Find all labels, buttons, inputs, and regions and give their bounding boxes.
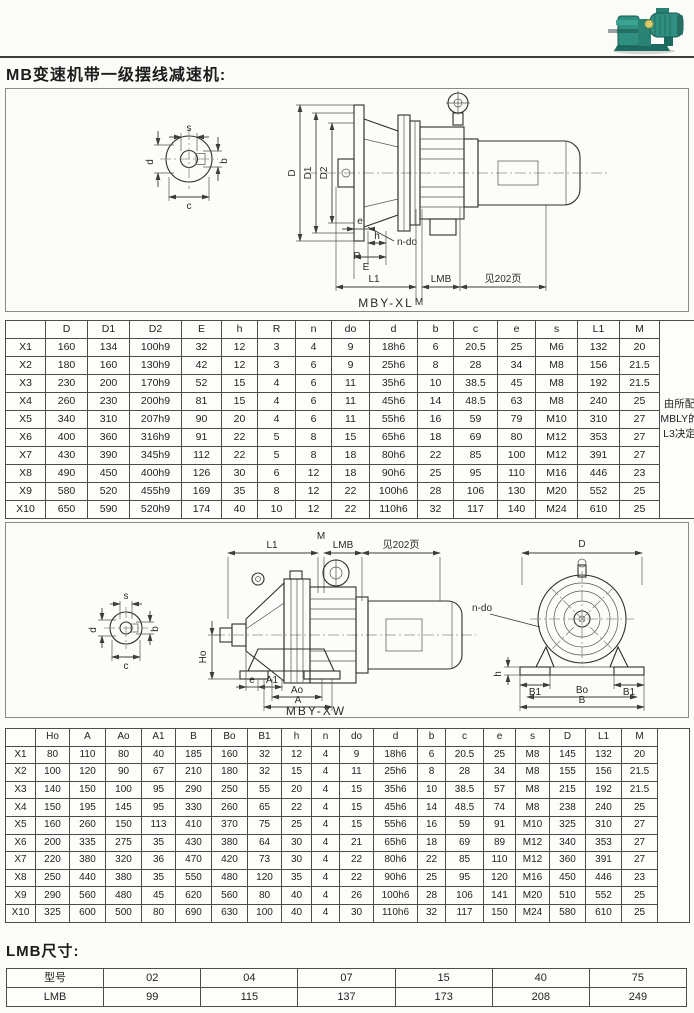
see-page-label: 见202页: [383, 539, 420, 551]
table-cell: 500: [106, 904, 142, 922]
table-cell: 35h6: [374, 781, 418, 799]
lmb-dimension-table: 型号020407154075LMB99115137173208249: [6, 968, 687, 1007]
table-cell: 55: [248, 781, 282, 799]
table-cell: 340: [46, 411, 88, 429]
column-header: D1: [88, 321, 130, 339]
table-cell: 335: [70, 834, 106, 852]
table-cell: 28: [418, 483, 454, 501]
table-cell: 34: [498, 357, 536, 375]
dim-label-Ho: Ho: [198, 650, 209, 663]
table-cell: M24: [536, 501, 578, 519]
table-cell: 18: [418, 429, 454, 447]
table-cell: 446: [586, 869, 622, 887]
table-cell: 95: [454, 465, 498, 483]
shaft-end-view: s d b c: [88, 591, 161, 672]
table-cell: 20: [622, 746, 658, 764]
table-cell: 18: [418, 834, 446, 852]
table-cell: 65h6: [374, 834, 418, 852]
table-cell: M24: [516, 904, 550, 922]
table-cell: 340: [550, 834, 586, 852]
table-cell: 6: [296, 375, 332, 393]
column-header: d: [370, 321, 418, 339]
corner-cell: 型号: [7, 969, 104, 988]
table-cell: 150: [70, 781, 106, 799]
dim-label-R: R: [353, 251, 360, 262]
table-cell: 15: [282, 764, 312, 782]
table-cell: 160: [88, 357, 130, 375]
table-cell: 23: [622, 869, 658, 887]
table-cell: 90: [182, 411, 222, 429]
table-cell: 4: [312, 869, 340, 887]
column-header: h: [222, 321, 258, 339]
dim-label-n-do: n-do: [472, 603, 492, 614]
table-cell: 490: [46, 465, 88, 483]
row-label: X3: [6, 781, 36, 799]
table-cell: 380: [70, 852, 106, 870]
column-header: D2: [130, 321, 182, 339]
table-cell: 137: [298, 988, 395, 1007]
column-header: 02: [104, 969, 201, 988]
table-cell: 90h6: [374, 869, 418, 887]
table-cell: 240: [586, 799, 622, 817]
table-cell: 110h6: [374, 904, 418, 922]
table-cell: 520h9: [130, 501, 182, 519]
table-cell: 480: [106, 887, 142, 905]
column-header: e: [484, 729, 516, 747]
product-photo: [606, 4, 690, 56]
table-cell: 420: [212, 852, 248, 870]
table-cell: 174: [182, 501, 222, 519]
table-cell: 12: [296, 465, 332, 483]
diagram1-caption: MBY-XL: [358, 296, 414, 310]
table-cell: 32: [248, 764, 282, 782]
table-cell: 4: [312, 799, 340, 817]
table-cell: 30: [282, 852, 312, 870]
table-cell: 110: [70, 746, 106, 764]
table-cell: 106: [454, 483, 498, 501]
table-cell: M20: [516, 887, 550, 905]
table-cell: 480: [212, 869, 248, 887]
table-cell: 16: [418, 816, 446, 834]
table-cell: 208: [492, 988, 589, 1007]
table-cell: 120: [70, 764, 106, 782]
table-cell: 100h9: [130, 339, 182, 357]
table-cell: 117: [454, 501, 498, 519]
table-cell: 310: [88, 411, 130, 429]
table-cell: 330: [176, 799, 212, 817]
table-cell: 25: [418, 869, 446, 887]
table-cell: 160: [36, 816, 70, 834]
table-cell: 22: [340, 869, 374, 887]
table-row: X415019514595330260652241545h61448.574M8…: [6, 799, 690, 817]
row-label: X8: [6, 869, 36, 887]
table-cell: 21.5: [622, 781, 658, 799]
table-cell: 4: [312, 816, 340, 834]
table-cell: 580: [550, 904, 586, 922]
shaft-end-view: s d b c: [145, 123, 230, 212]
table-cell: M6: [536, 339, 578, 357]
table-cell: 65: [248, 799, 282, 817]
table-cell: 25: [622, 904, 658, 922]
table-cell: 610: [586, 904, 622, 922]
dim-label-D2: D2: [319, 166, 330, 179]
column-header: 40: [492, 969, 589, 988]
diagram-box-mby-xl: s d b c: [5, 88, 689, 312]
table-cell: 120: [248, 869, 282, 887]
table-cell: 4: [312, 764, 340, 782]
table-cell: 12: [222, 357, 258, 375]
table-cell: 18: [332, 447, 370, 465]
table-cell: 69: [446, 834, 484, 852]
table-cell: 430: [176, 834, 212, 852]
row-label: X5: [6, 411, 46, 429]
column-header: R: [258, 321, 296, 339]
table-cell: 74: [484, 799, 516, 817]
table-cell: M12: [516, 852, 550, 870]
table-row: X722038032036470420733042280h62285110M12…: [6, 852, 690, 870]
table-cell: 5: [258, 429, 296, 447]
table-cell: M10: [536, 411, 578, 429]
table-cell: 552: [578, 483, 620, 501]
column-header: A: [70, 729, 106, 747]
dim-label-n-do: n-do: [397, 237, 417, 248]
table-cell: M16: [516, 869, 550, 887]
header-row: 型号020407154075: [7, 969, 687, 988]
dim-label-s: s: [187, 123, 192, 134]
table-cell: 560: [70, 887, 106, 905]
table-cell: 22: [332, 483, 370, 501]
table-cell: 391: [578, 447, 620, 465]
row-label: X4: [6, 393, 46, 411]
table-row: LMB99115137173208249: [7, 988, 687, 1007]
table-cell: 48.5: [446, 799, 484, 817]
table-cell: 15: [340, 816, 374, 834]
table-row: X10650590520h917440101222110h632117140M2…: [6, 501, 694, 519]
table-row: X9290560480456205608040426100h628106141M…: [6, 887, 690, 905]
table-cell: 520: [88, 483, 130, 501]
assembly-end-view: D n-do: [472, 539, 644, 711]
table-cell: 27: [620, 429, 660, 447]
table-cell: 316h9: [130, 429, 182, 447]
table-cell: 59: [446, 816, 484, 834]
table-cell: 73: [248, 852, 282, 870]
table-row: X1160134100h9321234918h6620.525M613220: [6, 339, 694, 357]
dim-label-b: b: [219, 158, 230, 164]
table-cell: 620: [176, 887, 212, 905]
table-cell: 80h6: [374, 852, 418, 870]
column-header: b: [418, 321, 454, 339]
table-cell: 25: [622, 799, 658, 817]
table-cell: 85: [446, 852, 484, 870]
dim-label-D: D: [578, 539, 585, 550]
table-row: X7430390345h911222581880h62285100M123912…: [6, 447, 694, 465]
table-cell: 45h6: [374, 799, 418, 817]
table-cell: 410: [176, 816, 212, 834]
mby-xw-drawing: s d b c: [6, 523, 688, 717]
table-cell: 100: [106, 781, 142, 799]
table-cell: 210: [176, 764, 212, 782]
row-label: X6: [6, 429, 46, 447]
table-cell: 12: [296, 483, 332, 501]
dim-label-LMB: LMB: [431, 274, 452, 285]
table-cell: 360: [550, 852, 586, 870]
table-cell: 16: [418, 411, 454, 429]
table-cell: 25: [620, 393, 660, 411]
table-cell: 250: [212, 781, 248, 799]
table-cell: 32: [418, 904, 446, 922]
row-label: X9: [6, 483, 46, 501]
table-cell: 12: [282, 746, 312, 764]
table-cell: 430: [46, 447, 88, 465]
table-cell: 140: [498, 501, 536, 519]
table-cell: 22: [282, 799, 312, 817]
table-cell: M8: [516, 746, 550, 764]
table-cell: 10: [418, 781, 446, 799]
table-cell: 8: [418, 764, 446, 782]
table-cell: 25: [620, 501, 660, 519]
table-cell: 20: [222, 411, 258, 429]
table-cell: 450: [550, 869, 586, 887]
table-cell: 35h6: [370, 375, 418, 393]
table-cell: M20: [536, 483, 578, 501]
table-cell: 14: [418, 799, 446, 817]
table-cell: 10: [258, 501, 296, 519]
dim-label-e: e: [357, 216, 363, 227]
diagram2-caption: MBY-XW: [286, 704, 346, 717]
table-cell: 22: [340, 852, 374, 870]
table-cell: M8: [536, 357, 578, 375]
table-cell: 20: [620, 339, 660, 357]
table-cell: 95: [142, 781, 176, 799]
column-header: D: [46, 321, 88, 339]
table-cell: 27: [620, 447, 660, 465]
table-cell: 15: [222, 375, 258, 393]
table-cell: M8: [516, 799, 550, 817]
row-label: X2: [6, 764, 36, 782]
table-cell: 455h9: [130, 483, 182, 501]
table-cell: 156: [578, 357, 620, 375]
table-cell: 9: [332, 339, 370, 357]
table-cell: M10: [516, 816, 550, 834]
table-cell: 89: [484, 834, 516, 852]
table-cell: 156: [586, 764, 622, 782]
table-cell: 18h6: [370, 339, 418, 357]
table-cell: 11: [340, 764, 374, 782]
table-cell: 22: [332, 501, 370, 519]
table-cell: 3: [258, 339, 296, 357]
table-cell: 79: [498, 411, 536, 429]
table-cell: 90: [106, 764, 142, 782]
row-label: LMB: [7, 988, 104, 1007]
table-cell: 140: [36, 781, 70, 799]
table-cell: 85: [454, 447, 498, 465]
table-cell: 8: [258, 483, 296, 501]
table-cell: 45h6: [370, 393, 418, 411]
dim-label-B: B: [579, 695, 586, 706]
table-row: X3230200170h95215461135h61038.545M819221…: [6, 375, 694, 393]
table-cell: 550: [176, 869, 212, 887]
table-cell: 192: [578, 375, 620, 393]
table-cell: 6: [258, 465, 296, 483]
table-cell: 110: [484, 852, 516, 870]
corner-cell: [6, 321, 46, 339]
column-header: 07: [298, 969, 395, 988]
column-header: Ho: [36, 729, 70, 747]
table-cell: 99: [104, 988, 201, 1007]
column-header: D: [550, 729, 586, 747]
column-header: c: [454, 321, 498, 339]
header-row: HoAAoA1BBoB1hndodbcesDL1M: [6, 729, 690, 747]
table-cell: 610: [578, 501, 620, 519]
table-cell: 22: [418, 447, 454, 465]
table-cell: 230: [46, 375, 88, 393]
table-row: X314015010095290250552041535h61038.557M8…: [6, 781, 690, 799]
table-cell: 35: [222, 483, 258, 501]
dim-label-d: d: [88, 627, 99, 633]
column-header: Bo: [212, 729, 248, 747]
header-row: DD1D2EhRndodbcesL1M由所配MBLY的L3决定: [6, 321, 694, 339]
table-cell: 27: [622, 816, 658, 834]
dim-label-B1-right: B1: [623, 687, 636, 698]
table-cell: 27: [622, 852, 658, 870]
column-header: do: [340, 729, 374, 747]
table-cell: 155: [550, 764, 586, 782]
row-label: X3: [6, 375, 46, 393]
table-cell: 8: [296, 447, 332, 465]
table-cell: 32: [418, 501, 454, 519]
table-cell: 240: [578, 393, 620, 411]
table-cell: 81: [182, 393, 222, 411]
table-cell: 6: [296, 411, 332, 429]
table-cell: 80: [106, 746, 142, 764]
row-label: X6: [6, 834, 36, 852]
table-cell: 35: [142, 869, 176, 887]
table-cell: 28: [454, 357, 498, 375]
table-cell: 145: [550, 746, 586, 764]
table-cell: 380: [106, 869, 142, 887]
table-cell: 90h6: [370, 465, 418, 483]
column-header: Ao: [106, 729, 142, 747]
table-cell: 4: [312, 904, 340, 922]
table-cell: 100: [248, 904, 282, 922]
column-header: s: [536, 321, 578, 339]
table-cell: 132: [578, 339, 620, 357]
table-cell: 12: [296, 501, 332, 519]
table-cell: 6: [418, 746, 446, 764]
column-header: L1: [578, 321, 620, 339]
table-cell: 5: [258, 447, 296, 465]
column-header: n: [312, 729, 340, 747]
table-cell: 353: [586, 834, 622, 852]
table-cell: 80: [36, 746, 70, 764]
table-cell: 57: [484, 781, 516, 799]
table-cell: 360: [88, 429, 130, 447]
column-header: M: [620, 321, 660, 339]
mby-xw-dimension-table: HoAAoA1BBoB1hndodbcesDL1MX18011080401851…: [5, 728, 690, 923]
table-cell: 238: [550, 799, 586, 817]
table-cell: 4: [312, 781, 340, 799]
table-cell: M8: [536, 393, 578, 411]
table-cell: 4: [312, 834, 340, 852]
table-cell: 38.5: [454, 375, 498, 393]
dim-label-M: M: [415, 297, 423, 308]
table-cell: 630: [212, 904, 248, 922]
table-cell: 55h6: [370, 411, 418, 429]
table-cell: 15: [340, 781, 374, 799]
table-cell: 45: [498, 375, 536, 393]
table-cell: 10: [418, 375, 454, 393]
dim-label-D: D: [287, 169, 298, 176]
column-header: do: [332, 321, 370, 339]
table-cell: 40: [222, 501, 258, 519]
table-cell: 145: [106, 799, 142, 817]
table-cell: 42: [182, 357, 222, 375]
table-cell: 75: [248, 816, 282, 834]
row-label: X2: [6, 357, 46, 375]
table-cell: 110h6: [370, 501, 418, 519]
table-cell: 9: [340, 746, 374, 764]
table-cell: 250: [36, 869, 70, 887]
column-header: b: [418, 729, 446, 747]
table-cell: 160: [212, 746, 248, 764]
table-cell: 650: [46, 501, 88, 519]
table-row: X6400360316h99122581565h6186980M1235327: [6, 429, 694, 447]
table-cell: 180: [212, 764, 248, 782]
table-cell: 11: [332, 411, 370, 429]
table-cell: 169: [182, 483, 222, 501]
column-header: M: [622, 729, 658, 747]
table-cell: 320: [106, 852, 142, 870]
row-label: X8: [6, 465, 46, 483]
table-cell: 200h9: [130, 393, 182, 411]
dim-label-L1: L1: [266, 540, 278, 551]
table-cell: 69: [454, 429, 498, 447]
table-cell: 20: [282, 781, 312, 799]
table-cell: 400h9: [130, 465, 182, 483]
table-cell: 22: [222, 447, 258, 465]
table-cell: 25: [622, 887, 658, 905]
dim-label-h: h: [493, 671, 504, 677]
table-cell: 12: [222, 339, 258, 357]
table-cell: 21.5: [620, 357, 660, 375]
table-cell: 20.5: [454, 339, 498, 357]
table-cell: 391: [586, 852, 622, 870]
table-cell: 690: [176, 904, 212, 922]
row-label: X4: [6, 799, 36, 817]
table-cell: 35: [282, 869, 312, 887]
row-label: X1: [6, 339, 46, 357]
table-cell: 67: [142, 764, 176, 782]
gear-motor-photo-illustration: [606, 4, 690, 56]
table-cell: 185: [176, 746, 212, 764]
table-cell: 25h6: [370, 357, 418, 375]
table-cell: 6: [418, 339, 454, 357]
table-row: X8250440380355504801203542290h62595120M1…: [6, 869, 690, 887]
table-cell: 80: [248, 887, 282, 905]
table-cell: 160: [46, 339, 88, 357]
column-header: L1: [586, 729, 622, 747]
table-cell: 27: [620, 411, 660, 429]
column-header: d: [374, 729, 418, 747]
table-cell: 11: [332, 375, 370, 393]
diagram-box-mby-xw: s d b c: [5, 522, 689, 718]
table-cell: 27: [622, 834, 658, 852]
table-cell: M16: [536, 465, 578, 483]
table-cell: 59: [454, 411, 498, 429]
column-header: c: [446, 729, 484, 747]
table-cell: 450: [88, 465, 130, 483]
table-cell: 36: [142, 852, 176, 870]
